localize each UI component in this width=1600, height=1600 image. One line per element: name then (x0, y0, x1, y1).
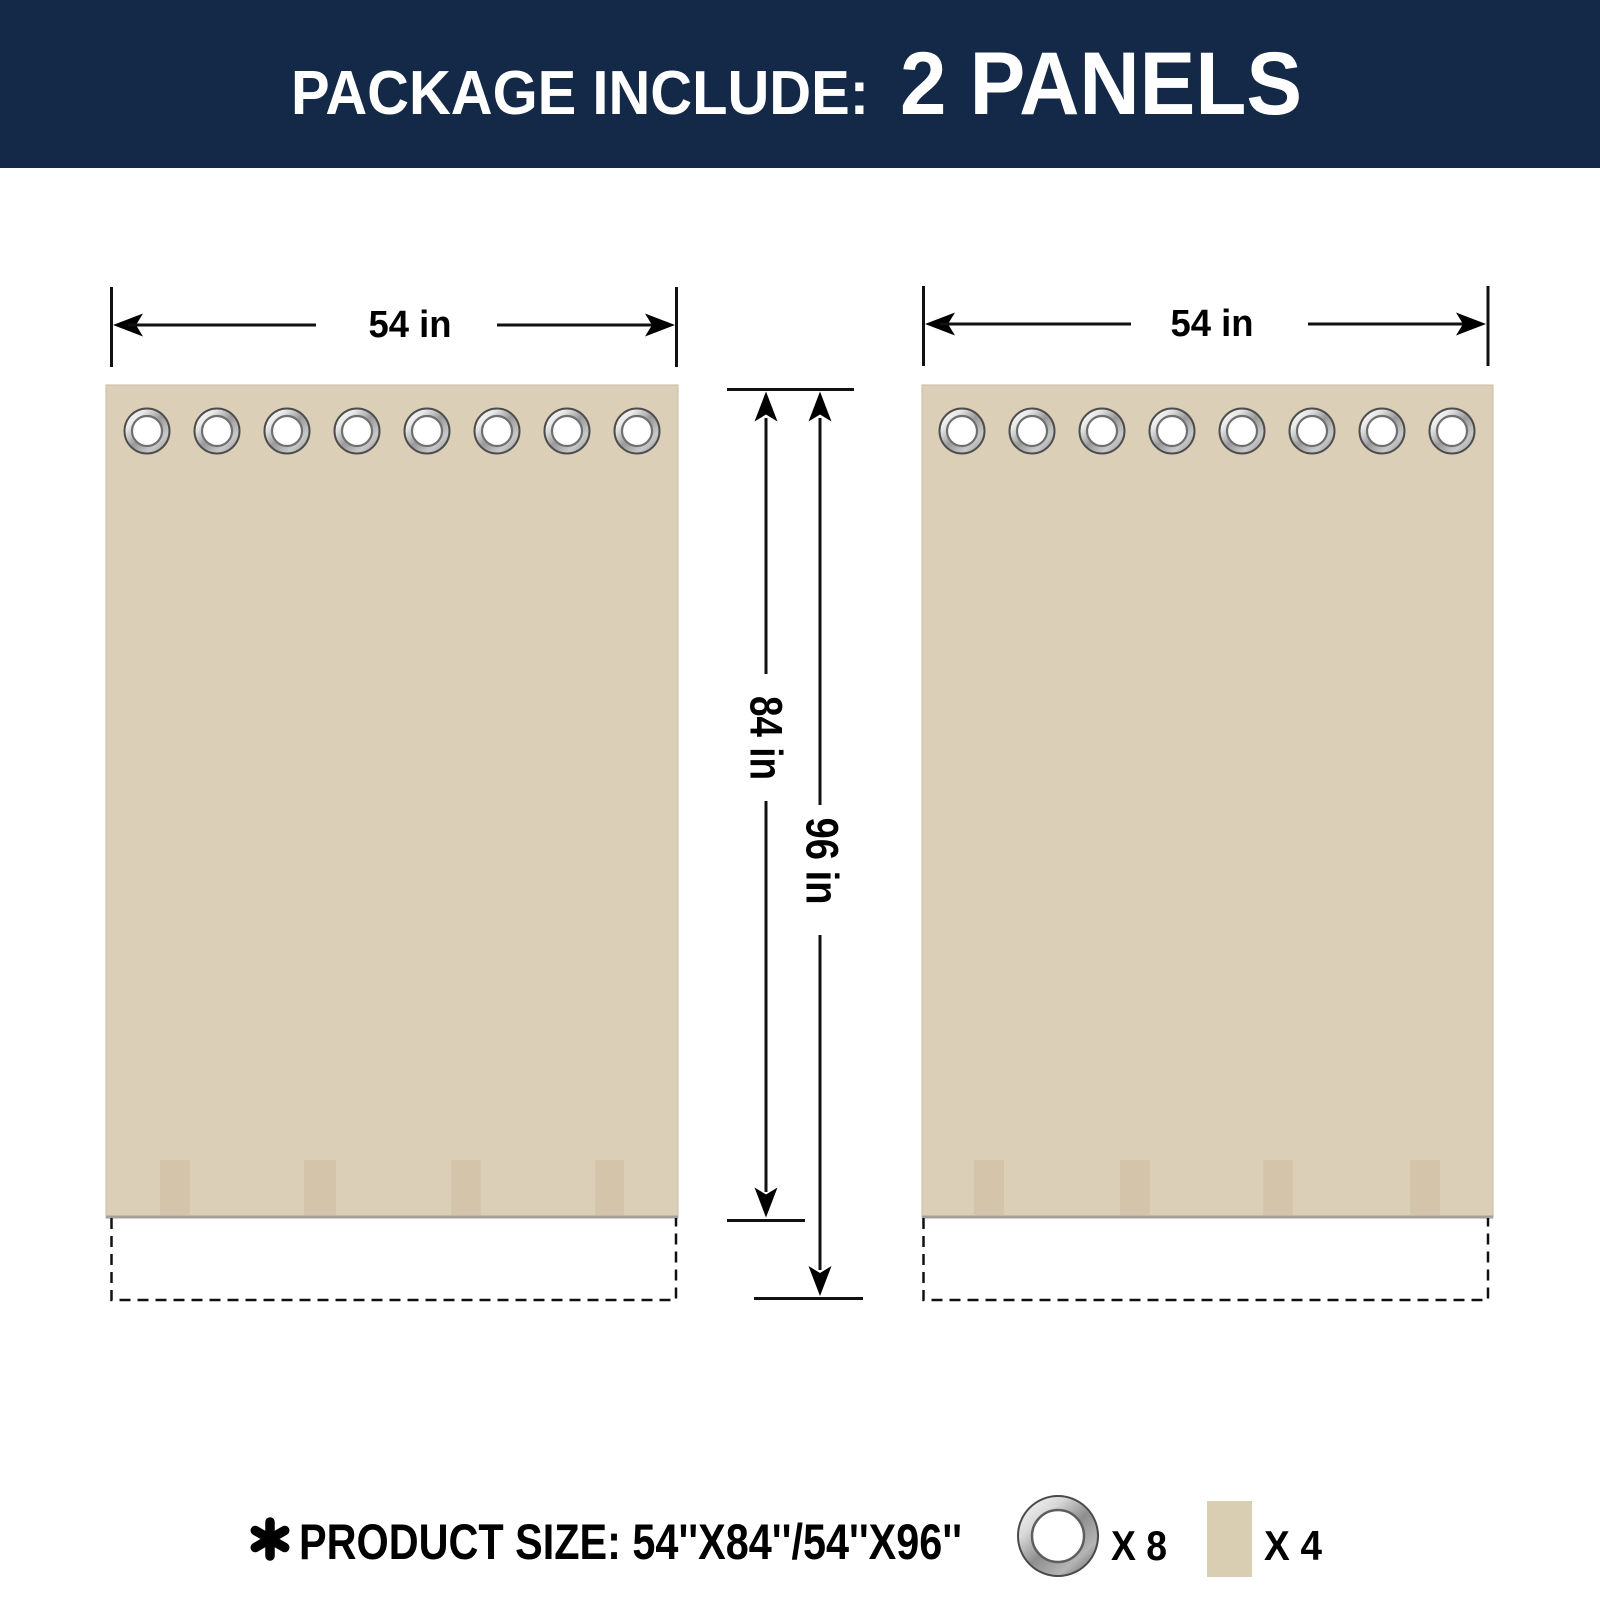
svg-text:X 8: X 8 (1111, 1522, 1167, 1569)
svg-text:54 in: 54 in (1171, 303, 1254, 345)
svg-text:PACKAGE INCLUDE:: PACKAGE INCLUDE: (291, 59, 869, 128)
svg-text:X 4: X 4 (1264, 1522, 1323, 1569)
svg-text:2 PANELS: 2 PANELS (900, 33, 1302, 133)
svg-text:96 in: 96 in (797, 818, 848, 905)
svg-text:PRODUCT SIZE: 54''X84''/54''X9: PRODUCT SIZE: 54''X84''/54''X96'' (299, 1514, 962, 1570)
svg-text:54 in: 54 in (369, 304, 452, 346)
svg-text:84 in: 84 in (741, 696, 792, 780)
